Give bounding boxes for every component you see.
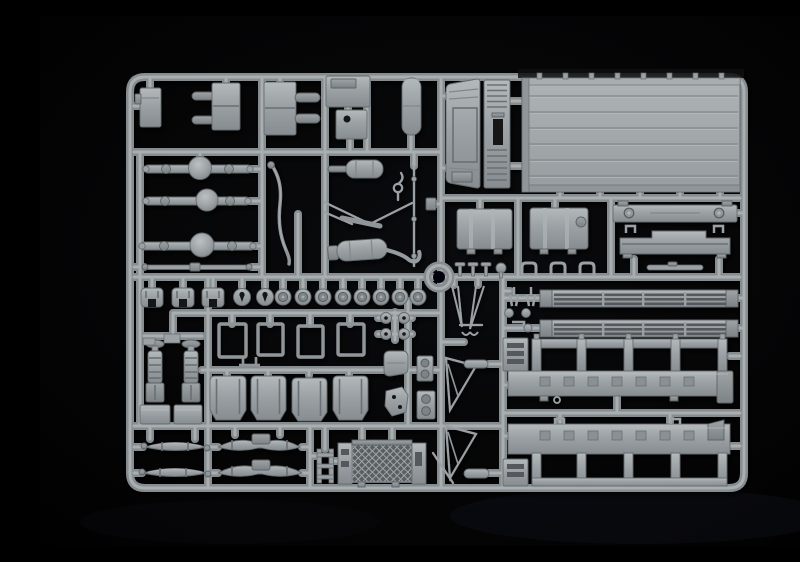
box-with-hatch xyxy=(326,76,370,107)
step-ladder-part xyxy=(317,449,334,483)
sprue-illustration xyxy=(40,16,800,546)
radiator-with-mesh xyxy=(338,440,426,487)
box-with-hole xyxy=(336,110,367,139)
tall-canister xyxy=(402,78,421,135)
angle-bracket xyxy=(385,387,408,416)
side-rail-upper xyxy=(540,290,738,307)
cab-back-panel xyxy=(446,79,480,188)
end-ladder-piece xyxy=(503,459,528,486)
end-ladder-piece xyxy=(503,338,528,371)
fender-arches xyxy=(141,288,224,307)
chassis-bracket xyxy=(426,198,436,210)
front-grille-panel xyxy=(484,80,510,188)
center-locating-ring xyxy=(428,266,451,289)
side-rail-lower xyxy=(540,320,738,337)
seat-cushion xyxy=(384,351,408,376)
fuel-tank-right xyxy=(530,208,588,254)
cargo-bed-floor-panel xyxy=(518,69,744,192)
fuel-tank-left xyxy=(457,209,512,254)
sprue-photo xyxy=(40,16,800,546)
